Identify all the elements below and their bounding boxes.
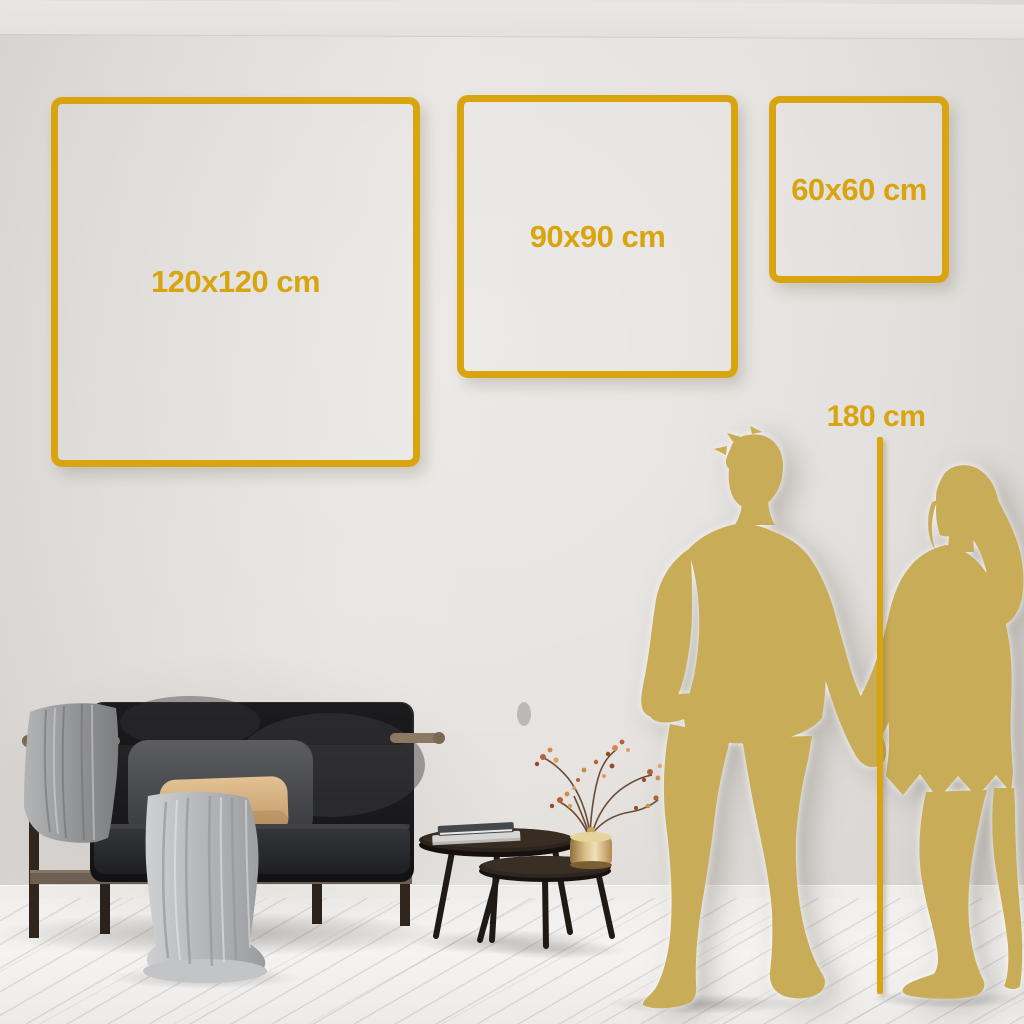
height-ruler-line [877,437,883,994]
dried-flower-branch [544,750,658,834]
size-label-60cm: 60x60 cm [791,172,927,208]
man-silhouette [641,426,886,1008]
size-label-90cm: 90x90 cm [530,219,666,255]
throw-blanket [24,703,118,842]
size-guide-image: 120x120 cm 90x90 cm 60x60 cm 180 cm [0,0,1024,1024]
size-label-120cm: 120x120 cm [151,264,320,300]
size-frame-120cm: 120x120 cm [51,97,420,467]
size-frame-60cm: 60x60 cm [769,96,949,283]
size-frame-90cm: 90x90 cm [457,95,738,378]
couple-silhouette [641,426,1023,1008]
throw-blanket-cascade [143,792,267,983]
height-reference-label: 180 cm [827,400,926,434]
brass-vase [570,827,612,869]
